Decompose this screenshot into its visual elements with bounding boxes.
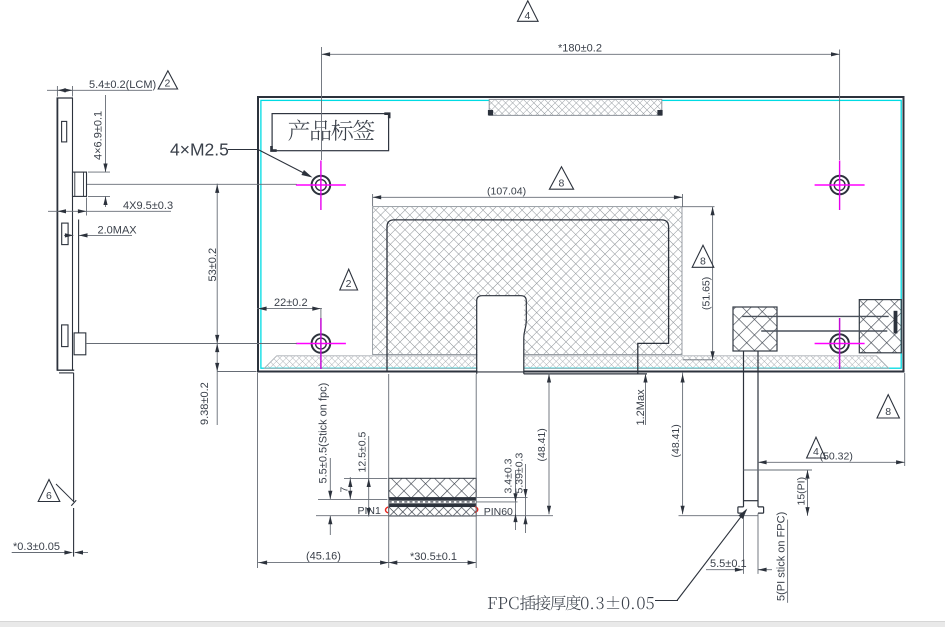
svg-text:2: 2 bbox=[346, 278, 352, 290]
svg-text:9.38±0.2: 9.38±0.2 bbox=[199, 382, 211, 425]
svg-text:4: 4 bbox=[525, 10, 531, 22]
svg-text:15(PI): 15(PI) bbox=[796, 477, 808, 506]
svg-text:4X9.5±0.3: 4X9.5±0.3 bbox=[123, 200, 173, 212]
svg-text:4: 4 bbox=[813, 446, 819, 458]
svg-text:5.5±0.1: 5.5±0.1 bbox=[710, 558, 747, 570]
svg-text:5(PI stick on FPC): 5(PI stick on FPC) bbox=[776, 512, 788, 601]
svg-text:7: 7 bbox=[338, 487, 350, 493]
svg-text:22±0.2: 22±0.2 bbox=[274, 297, 308, 309]
svg-text:53±0.2: 53±0.2 bbox=[207, 248, 219, 282]
svg-text:2.0MAX: 2.0MAX bbox=[98, 224, 138, 236]
svg-text:6: 6 bbox=[46, 490, 52, 502]
svg-text:*180±0.2: *180±0.2 bbox=[558, 42, 602, 54]
svg-text:8: 8 bbox=[885, 406, 891, 418]
svg-text:8: 8 bbox=[700, 255, 706, 267]
svg-text:*0.3±0.05: *0.3±0.05 bbox=[13, 541, 60, 553]
svg-text:12.5±0.5: 12.5±0.5 bbox=[357, 432, 369, 473]
svg-text:5.5±0.5(Stick on fpc): 5.5±0.5(Stick on fpc) bbox=[317, 383, 329, 484]
svg-text:(45.16): (45.16) bbox=[306, 551, 341, 563]
svg-text:(51.65): (51.65) bbox=[701, 277, 713, 310]
svg-text:8: 8 bbox=[559, 177, 565, 189]
svg-text:5.39±0.3: 5.39±0.3 bbox=[513, 453, 525, 494]
svg-text:4×6.9±0.1: 4×6.9±0.1 bbox=[93, 111, 105, 160]
svg-text:4×M2.5: 4×M2.5 bbox=[170, 139, 229, 159]
svg-text:(107.04): (107.04) bbox=[487, 185, 526, 197]
svg-text:*30.5±0.1: *30.5±0.1 bbox=[410, 551, 457, 563]
svg-text:2: 2 bbox=[165, 78, 171, 90]
svg-text:5.4±0.2(LCM): 5.4±0.2(LCM) bbox=[89, 79, 156, 91]
svg-text:1.2Max: 1.2Max bbox=[635, 389, 647, 426]
svg-text:(48.41): (48.41) bbox=[536, 428, 548, 461]
svg-text:(48.41): (48.41) bbox=[670, 424, 682, 457]
